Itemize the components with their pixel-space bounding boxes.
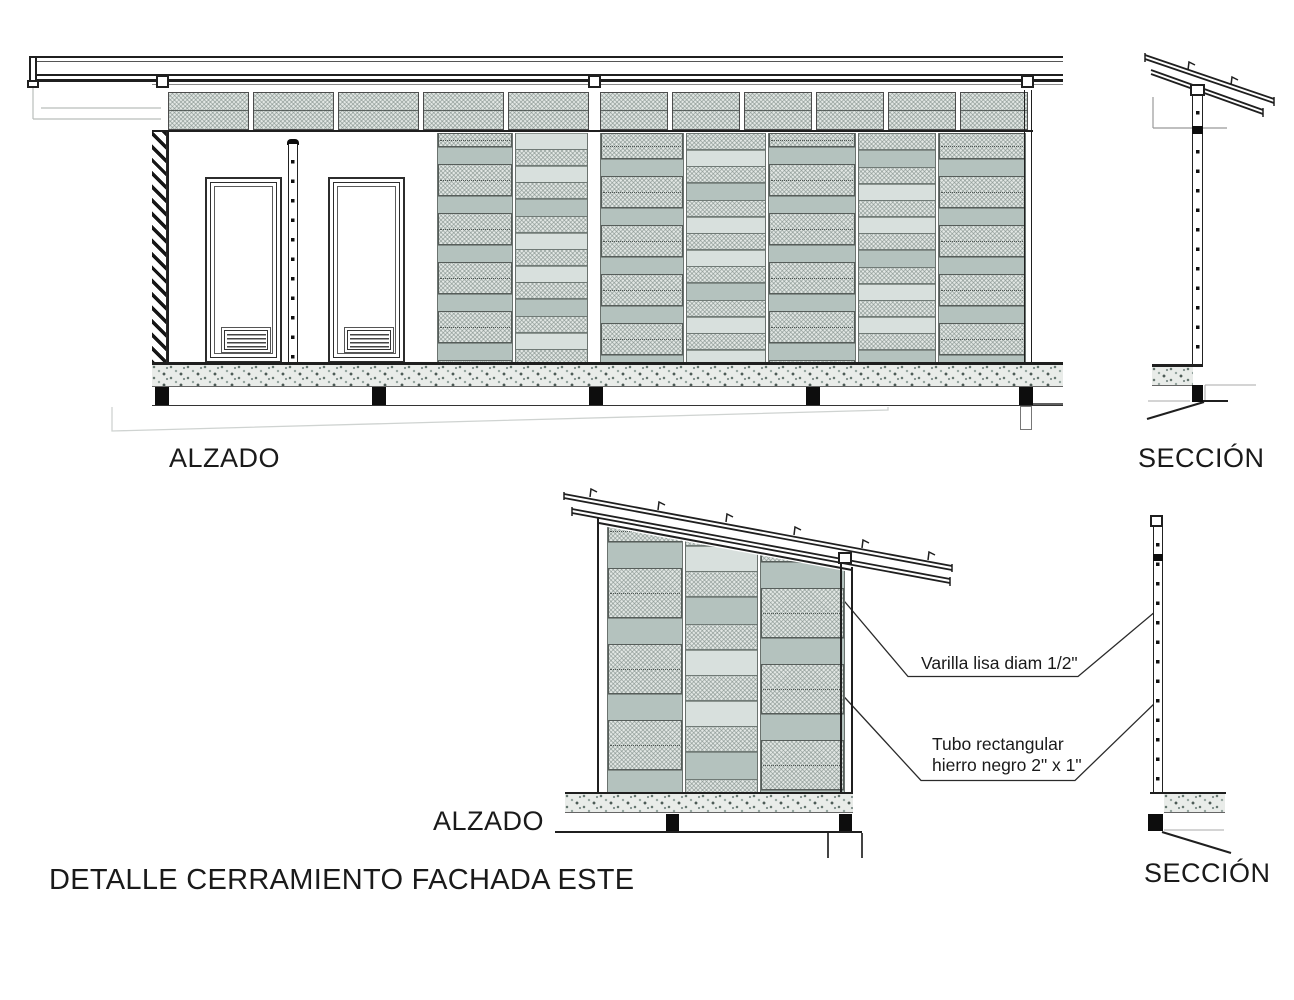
roof-line [36, 74, 1063, 76]
slat-row [687, 333, 765, 350]
slat-row [687, 217, 765, 233]
slat-row [438, 213, 512, 245]
slat-row [601, 133, 683, 159]
detail-right-frame [840, 563, 842, 795]
clerestory-panel [253, 92, 334, 130]
slat-row [859, 267, 935, 284]
slat-row [601, 176, 683, 208]
slat-row [608, 694, 682, 720]
door-right-vent [344, 327, 394, 353]
slat-row [438, 311, 512, 343]
sheet-title: DETALLE CERRAMIENTO FACHADA ESTE [49, 864, 634, 897]
slat-row [516, 182, 587, 199]
section-main-ceiling [1153, 97, 1227, 128]
clerestory-panel-midline [601, 110, 667, 111]
slat-row [608, 644, 682, 694]
slat-row [769, 213, 855, 245]
ground-outline-main [112, 407, 888, 431]
slat-row [939, 257, 1025, 274]
footing [589, 387, 603, 405]
footing [372, 387, 386, 405]
section-main-roof [1145, 53, 1274, 117]
slat-row [769, 245, 855, 262]
clerestory-panel-midline [961, 110, 1027, 111]
slat-row [859, 133, 935, 150]
slat-row [516, 216, 587, 233]
slat-row [438, 262, 512, 294]
detail-section-cap [1150, 515, 1163, 527]
slat-row [438, 147, 512, 164]
slab-concrete [152, 365, 1063, 387]
slat-row [761, 714, 844, 740]
slat-row [769, 343, 855, 360]
clerestory-panel-midline [673, 110, 739, 111]
slat-row [859, 184, 935, 200]
slat-row [687, 317, 765, 333]
clerestory-panel [338, 92, 419, 130]
slat-row [608, 542, 682, 568]
detail-slat-column [760, 520, 845, 795]
slat-row [769, 147, 855, 164]
slat-row [687, 300, 765, 317]
section-post-joint [1192, 126, 1203, 134]
detail-section-joint [1153, 554, 1163, 561]
roof-line [152, 84, 1063, 85]
slat-column [515, 133, 588, 363]
slat-row [516, 199, 587, 216]
slat-column [600, 133, 684, 363]
clerestory-panel-midline [745, 110, 811, 111]
slat-column [686, 133, 766, 363]
footing [1019, 387, 1033, 405]
roof-fascia-foot [27, 80, 39, 88]
slat-row [686, 701, 757, 726]
slat-row [686, 675, 757, 701]
clerestory-panel-midline [817, 110, 883, 111]
rod-post [288, 144, 298, 365]
slat-row [438, 245, 512, 262]
slat-row [939, 323, 1025, 355]
slat-row [516, 249, 587, 266]
slat-row [859, 250, 935, 267]
slat-row [438, 294, 512, 311]
clerestory-panel-midline [169, 110, 248, 111]
slat-row [687, 166, 765, 183]
slat-row [516, 166, 587, 182]
slat-row [516, 316, 587, 333]
slat-row [516, 299, 587, 316]
slat-row [687, 250, 765, 266]
clerestory-panel [672, 92, 740, 130]
slat-row [769, 133, 855, 147]
elevation-detail-label: ALZADO [433, 806, 544, 837]
slat-row [859, 284, 935, 300]
pier-below-grade [1020, 406, 1032, 430]
roof-line [36, 79, 1063, 82]
slat-row [516, 149, 587, 166]
detail-footing [666, 814, 679, 831]
detail-left-frame [597, 517, 599, 795]
slat-row [939, 306, 1025, 323]
plinth-bottom-line [152, 405, 1063, 407]
slat-row [608, 520, 682, 542]
slat-row [601, 225, 683, 257]
clerestory-panel [600, 92, 668, 130]
slat-row [516, 349, 587, 363]
slat-row [601, 323, 683, 355]
slat-row [761, 664, 844, 714]
architectural-drawing-sheet: ALZADO SECCIÓN ALZADO SECCIÓN [0, 0, 1294, 1000]
clerestory-panel [168, 92, 249, 130]
clerestory-panel-midline [254, 110, 333, 111]
clerestory-panel-midline [889, 110, 955, 111]
annotation-tubo-line2: hierro negro 2" x 1" [932, 755, 1082, 776]
slat-row [761, 740, 844, 790]
slat-column [938, 133, 1026, 363]
slat-row [687, 133, 765, 150]
slat-row [859, 333, 935, 350]
slat-row [859, 217, 935, 233]
slat-row [601, 274, 683, 306]
slat-row [939, 176, 1025, 208]
section-detail-ground [1162, 830, 1231, 853]
footing [155, 387, 169, 405]
right-frame-line [1024, 90, 1026, 363]
detail-pedestal-line [861, 833, 863, 858]
slat-row [686, 726, 757, 752]
slat-column [858, 133, 936, 363]
clerestory-panel [744, 92, 812, 130]
slat-row [438, 343, 512, 360]
section-post-bracket [1190, 84, 1205, 96]
slat-row [859, 150, 935, 167]
slat-row [516, 233, 587, 249]
section-footing [1192, 385, 1203, 402]
detail-footing [839, 814, 852, 831]
slat-row [859, 300, 935, 317]
roof-line [29, 56, 1063, 58]
clerestory-panel-midline [509, 110, 588, 111]
slat-row [686, 597, 757, 623]
slat-row [438, 196, 512, 213]
slat-row [769, 311, 855, 343]
slat-row [939, 274, 1025, 306]
clerestory-panel-midline [339, 110, 418, 111]
detail-slat-wall [607, 520, 845, 795]
slat-row [686, 752, 757, 778]
slat-row [516, 133, 587, 149]
slat-row [761, 638, 844, 664]
roof-line [36, 61, 1063, 62]
slat-row [687, 200, 765, 217]
eave-outline [33, 88, 161, 119]
wall-top-line [152, 130, 1033, 132]
slat-row [601, 257, 683, 274]
slat-row [608, 568, 682, 618]
slat-row [859, 317, 935, 333]
slat-row [686, 624, 757, 650]
detail-section-footing [1148, 814, 1163, 831]
section-detail-label: SECCIÓN [1144, 858, 1271, 889]
column-cap [1021, 75, 1034, 88]
slat-row [769, 262, 855, 294]
clerestory-panel [960, 92, 1028, 130]
slat-row [939, 208, 1025, 225]
detail-section-post [1153, 527, 1163, 793]
section-slab-concrete [1152, 367, 1193, 386]
corner-louver-hatch [152, 132, 167, 364]
column-cap [588, 75, 601, 88]
detail-right-frame [851, 567, 853, 795]
clerestory-panel [888, 92, 956, 130]
detail-slat-column [685, 520, 758, 795]
slat-row [601, 306, 683, 323]
slat-row [686, 571, 757, 597]
slat-row [516, 282, 587, 299]
slat-row [516, 333, 587, 349]
detail-column-cap [838, 552, 852, 564]
slat-row [859, 233, 935, 250]
slat-column [437, 133, 513, 363]
slat-row [769, 196, 855, 213]
slat-row [687, 233, 765, 250]
slat-row [438, 133, 512, 147]
door-left-vent [221, 327, 271, 353]
detail-bottom-line [555, 831, 862, 833]
vent-slats [224, 330, 268, 350]
detail-slat-column [607, 520, 683, 795]
detail-section-slab [1164, 794, 1225, 813]
slat-row [939, 225, 1025, 257]
clerestory-panel [816, 92, 884, 130]
annotation-tubo-line1: Tubo rectangular [932, 734, 1082, 755]
slat-row [687, 266, 765, 283]
slat-row [686, 546, 757, 571]
right-frame-line [1031, 90, 1033, 363]
slat-row [686, 650, 757, 675]
slat-row [939, 159, 1025, 176]
slat-row [601, 208, 683, 225]
slat-row [438, 164, 512, 196]
slat-row [761, 588, 844, 638]
clerestory-panel-midline [424, 110, 503, 111]
elevation-main-label: ALZADO [169, 443, 280, 474]
footing [806, 387, 820, 405]
slat-row [859, 167, 935, 184]
section-main-label: SECCIÓN [1138, 443, 1265, 474]
section-post [1192, 95, 1203, 366]
slat-row [687, 183, 765, 200]
slat-row [608, 720, 682, 770]
annotation-varilla: Varilla lisa diam 1/2" [921, 653, 1078, 674]
slat-row [769, 294, 855, 311]
slat-column [768, 133, 856, 363]
slat-row [769, 164, 855, 196]
slat-row [686, 520, 757, 546]
slat-row [939, 133, 1025, 159]
corner-post-line [167, 132, 169, 363]
column-cap [156, 75, 169, 88]
detail-pedestal-line [827, 833, 829, 858]
slat-row [687, 283, 765, 300]
slat-row [516, 266, 587, 282]
slat-row [859, 200, 935, 217]
slat-row [687, 150, 765, 166]
clerestory-panel [508, 92, 589, 130]
detail-slab-concrete [565, 794, 853, 813]
slat-row [608, 618, 682, 644]
slat-row [601, 159, 683, 176]
slat-row [761, 562, 844, 588]
annotation-tubo: Tubo rectangular hierro negro 2" x 1" [932, 734, 1082, 776]
clerestory-panel [423, 92, 504, 130]
slat-row [761, 520, 844, 562]
vent-slats [347, 330, 391, 350]
